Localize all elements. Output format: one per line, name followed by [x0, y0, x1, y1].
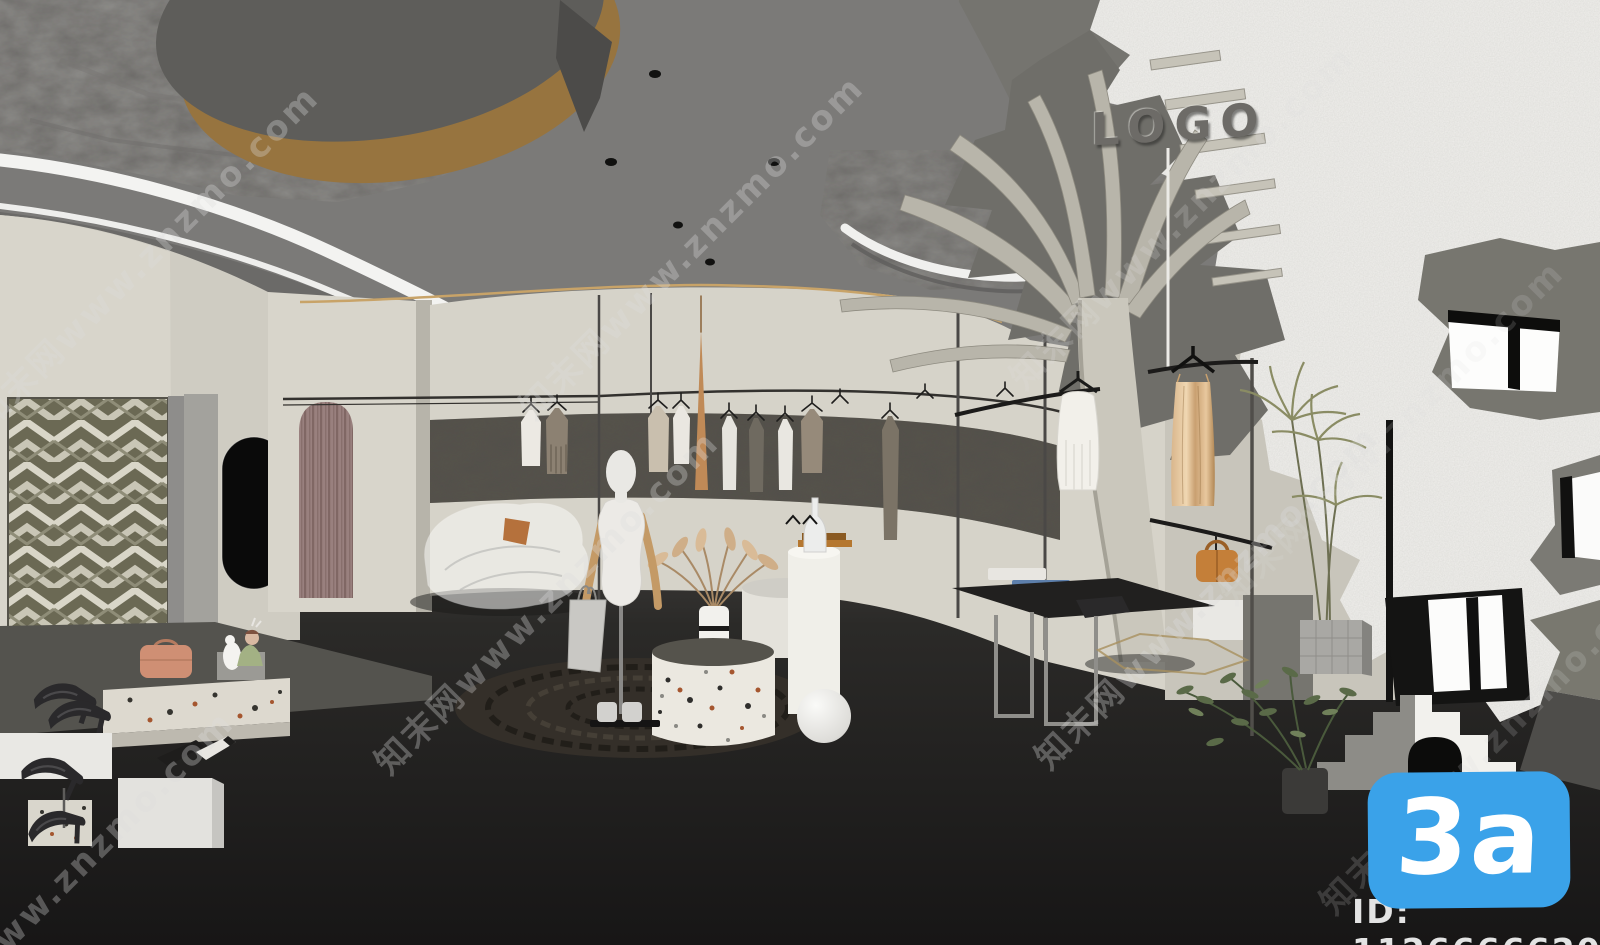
planter-box: [1300, 620, 1362, 674]
lattice-shelf: [8, 398, 168, 630]
salmon-handbag: [140, 641, 192, 679]
white-sphere: [797, 689, 851, 743]
3a-badge-label: 3a: [1393, 784, 1544, 889]
3a-badge: 3a: [1367, 771, 1570, 909]
terrazzo-slab: [103, 678, 290, 748]
arch-column: [268, 292, 432, 612]
wall-logo-text: LOGO: [1091, 93, 1268, 157]
store-render: 知末网www.znzmo.com 知末网www.znzmo.com 知末网www…: [0, 0, 1600, 945]
scene-illustration: [0, 0, 1600, 945]
